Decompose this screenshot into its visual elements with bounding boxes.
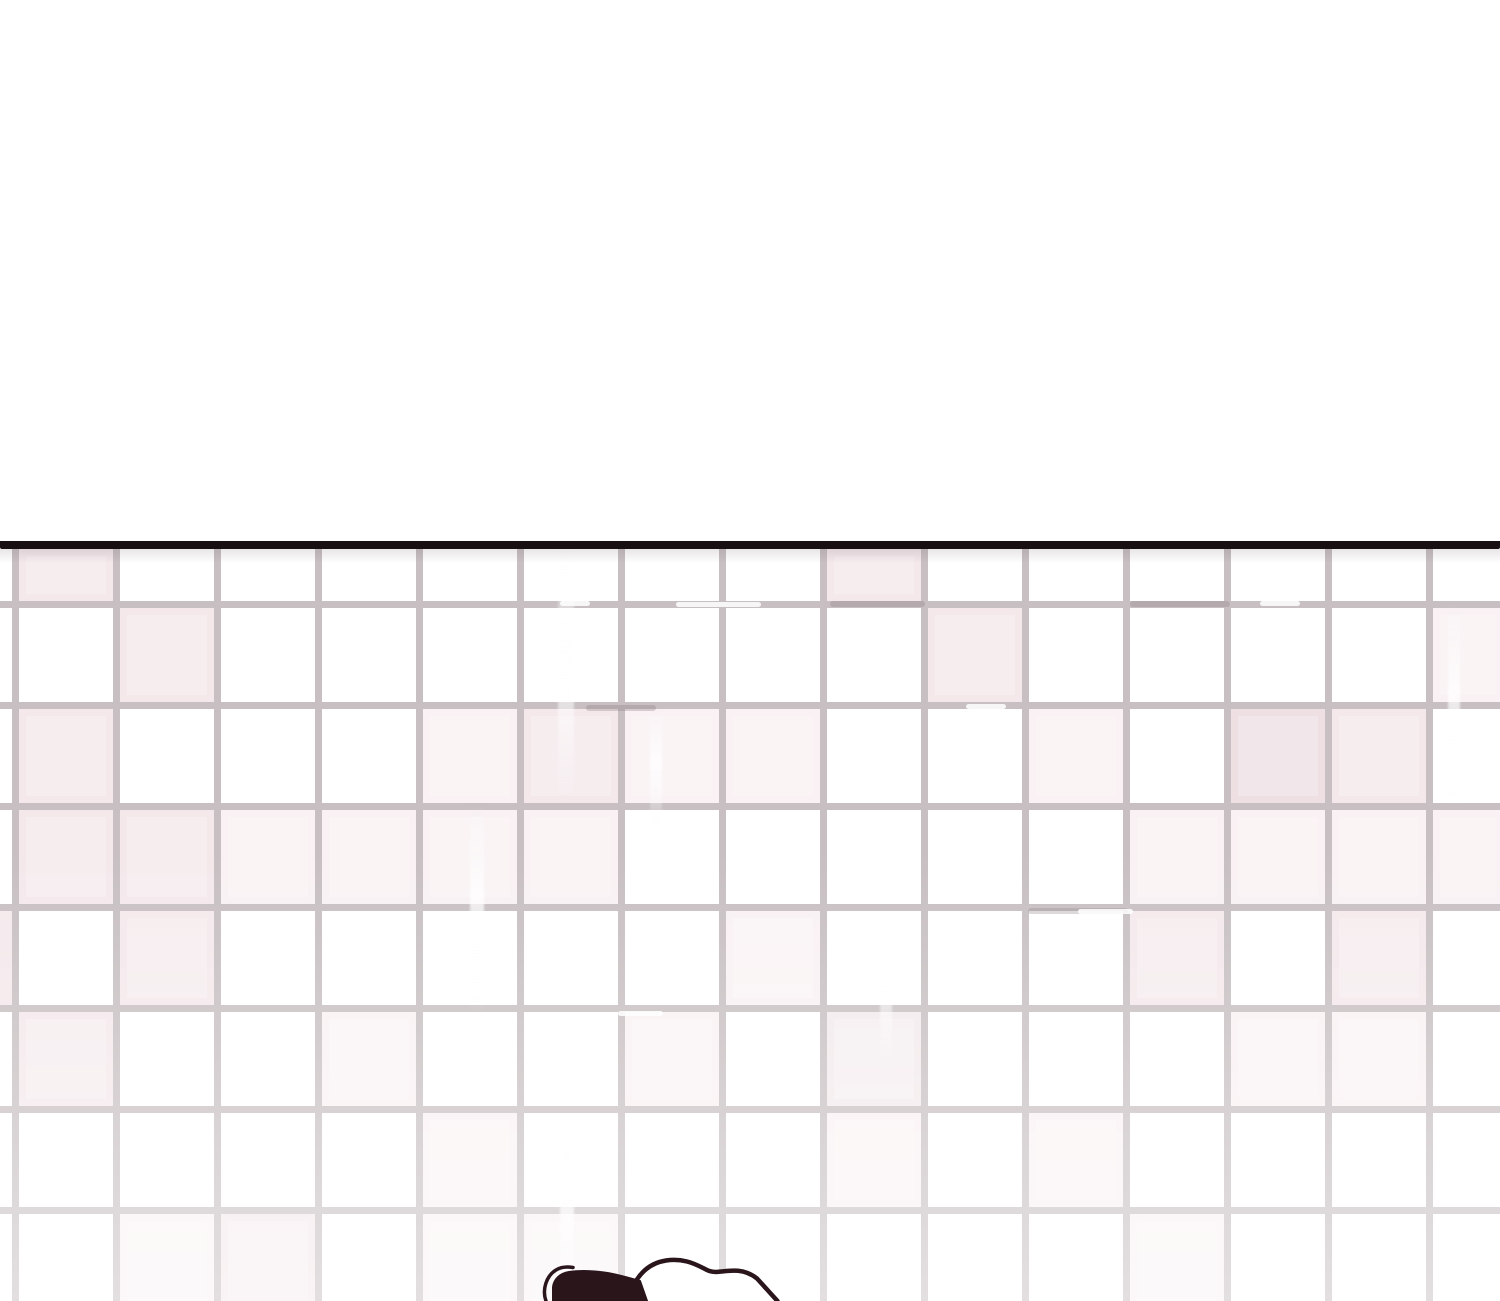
tile-pink (1332, 911, 1426, 1005)
tile-white (1130, 709, 1224, 803)
tile-pale-pink (322, 1012, 416, 1106)
tile-pale-pink (322, 810, 416, 904)
grout-sparkle (676, 602, 761, 607)
tile-white (625, 911, 719, 1005)
tile-white (221, 1012, 315, 1106)
tile-white (1029, 810, 1123, 904)
tile-white (1029, 911, 1123, 1005)
grout-sparkle (618, 1011, 663, 1016)
tile-pink (928, 608, 1022, 702)
tile-white (827, 810, 921, 904)
tile-white (726, 1012, 820, 1106)
tile-white (221, 608, 315, 702)
tile-pale-pink (1130, 1214, 1224, 1301)
grout-shadow-dash (830, 601, 925, 607)
tile-white (1332, 608, 1426, 702)
grout-sparkle (1078, 909, 1133, 914)
tile-white (1130, 1012, 1224, 1106)
tile-white (625, 608, 719, 702)
tile-grid (0, 549, 1500, 1301)
tile-white (0, 608, 12, 702)
tile-sheen-streak (650, 709, 662, 829)
tile-white (19, 1113, 113, 1207)
tile-white (120, 1113, 214, 1207)
tile-pale-pink (1231, 810, 1325, 904)
tile-pale-pink (1332, 1012, 1426, 1106)
tile-white (726, 1113, 820, 1207)
blank-page-area (0, 0, 1500, 541)
tile-white (1130, 608, 1224, 702)
tile-pink (19, 810, 113, 904)
tile-pale-pink (625, 1012, 719, 1106)
tile-white (928, 1214, 1022, 1301)
tile-white (19, 911, 113, 1005)
comic-panel-page: 腾讯动漫 (0, 0, 1500, 1301)
tile-white (19, 608, 113, 702)
tile-pale-pink (1231, 1012, 1325, 1106)
tile-white (1433, 709, 1500, 803)
grout-sparkle (560, 601, 590, 606)
tile-white (928, 1113, 1022, 1207)
tiled-wall-background: 腾讯动漫 (0, 549, 1500, 1301)
panel-border-line (0, 541, 1500, 549)
tile-deep-pink (1231, 709, 1325, 803)
tile-white (928, 810, 1022, 904)
tile-white (1332, 1113, 1426, 1207)
tile-white (0, 1113, 12, 1207)
tile-white (0, 1214, 12, 1301)
tile-white (1433, 911, 1500, 1005)
tile-white (625, 810, 719, 904)
tile-gray-pink (827, 1012, 921, 1106)
tile-white (423, 608, 517, 702)
tile-white (1231, 1113, 1325, 1207)
grout-shadow-dash (1130, 601, 1230, 607)
tile-pale-pink (524, 810, 618, 904)
tile-white (19, 1214, 113, 1301)
tile-white (322, 608, 416, 702)
tile-pink (120, 810, 214, 904)
tile-white (221, 1113, 315, 1207)
tile-pink (19, 1012, 113, 1106)
tile-white (524, 1012, 618, 1106)
tile-pale-pink (1332, 810, 1426, 904)
character-head (500, 1240, 800, 1301)
tile-sheen-streak (558, 549, 574, 804)
tile-white (0, 709, 12, 803)
tile-white (1433, 1214, 1500, 1301)
tile-white (1231, 911, 1325, 1005)
tile-white (1029, 608, 1123, 702)
tile-white (1029, 1214, 1123, 1301)
tile-white (0, 810, 12, 904)
tile-pale-pink (423, 1113, 517, 1207)
tile-white (120, 1012, 214, 1106)
tile-pale-pink (120, 1214, 214, 1301)
tile-white (423, 1012, 517, 1106)
tile-white (827, 709, 921, 803)
tile-sheen-streak (880, 909, 892, 1069)
tile-pale-pink (423, 709, 517, 803)
tile-sheen-streak (470, 804, 484, 1014)
tile-pink (1130, 911, 1224, 1005)
tile-white (120, 709, 214, 803)
tile-pale-pink (827, 1113, 921, 1207)
tile-sheen-streak (1448, 604, 1460, 804)
tile-white (1231, 608, 1325, 702)
tile-pink (221, 1214, 315, 1301)
tile-white (726, 608, 820, 702)
tile-pale-pink (1029, 709, 1123, 803)
tile-white (625, 1113, 719, 1207)
tile-white (928, 911, 1022, 1005)
tile-pink (0, 911, 12, 1005)
grout-sparkle (1260, 601, 1300, 606)
tile-pale-pink (1433, 608, 1500, 702)
tile-white (827, 608, 921, 702)
tile-white (1029, 1012, 1123, 1106)
tile-white (322, 911, 416, 1005)
tile-white (827, 911, 921, 1005)
tile-white (827, 1214, 921, 1301)
tile-pale-pink (221, 810, 315, 904)
tile-white (322, 709, 416, 803)
tile-white (726, 810, 820, 904)
tile-white (1332, 1214, 1426, 1301)
tile-white (524, 911, 618, 1005)
tile-pink (120, 608, 214, 702)
tile-pale-pink (625, 709, 719, 803)
tile-pale-pink (726, 709, 820, 803)
grout-sparkle (966, 704, 1006, 709)
tile-white (1231, 1214, 1325, 1301)
tile-pink (1332, 709, 1426, 803)
tile-white (928, 709, 1022, 803)
tile-white (1433, 1012, 1500, 1106)
tile-white (322, 1214, 416, 1301)
tile-pale-pink (1130, 810, 1224, 904)
tile-pale-pink (1029, 1113, 1123, 1207)
tile-pink (120, 911, 214, 1005)
grout-shadow-dash (586, 705, 656, 711)
tile-white (221, 911, 315, 1005)
panel-line-shadow (0, 549, 1500, 563)
hair-bang-shape (553, 1271, 647, 1301)
tile-white (1130, 1113, 1224, 1207)
tile-pale-pink (1433, 810, 1500, 904)
tile-pale-pink (726, 911, 820, 1005)
tile-pink (19, 709, 113, 803)
tile-white (221, 709, 315, 803)
tile-white (928, 1012, 1022, 1106)
tile-white (322, 1113, 416, 1207)
tile-white (0, 1012, 12, 1106)
tile-white (1433, 1113, 1500, 1207)
